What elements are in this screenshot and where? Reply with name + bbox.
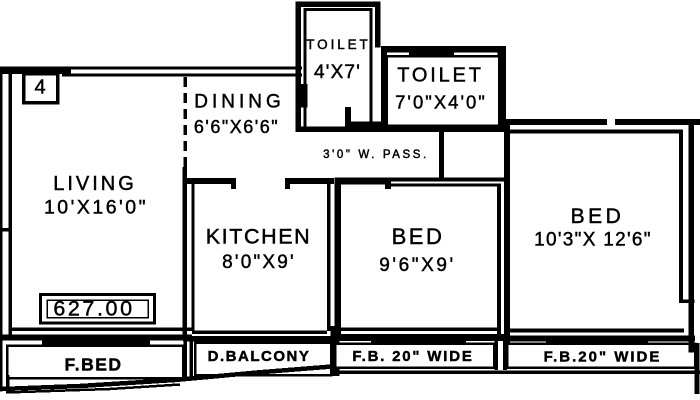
svg-text:BED: BED <box>571 205 625 228</box>
svg-text:F.B. 20" WIDE: F.B. 20" WIDE <box>352 348 473 365</box>
svg-text:627.00: 627.00 <box>53 297 134 321</box>
svg-text:8'0"X9': 8'0"X9' <box>222 252 296 273</box>
svg-text:9'6"X9': 9'6"X9' <box>379 255 456 276</box>
svg-text:LIVING: LIVING <box>53 173 137 195</box>
svg-text:KITCHEN: KITCHEN <box>206 225 312 249</box>
svg-text:F.B.20" WIDE: F.B.20" WIDE <box>544 349 662 366</box>
svg-text:7'0"X4'0": 7'0"X4'0" <box>395 92 487 113</box>
svg-text:6'6"X6'6": 6'6"X6'6" <box>194 117 279 137</box>
svg-text:3'0" W. PASS.: 3'0" W. PASS. <box>323 149 429 161</box>
svg-text:4'X7': 4'X7' <box>314 62 361 83</box>
svg-text:10'X16'0": 10'X16'0" <box>44 197 148 219</box>
svg-text:DINING: DINING <box>194 92 285 113</box>
svg-text:TOILET: TOILET <box>397 65 483 87</box>
svg-text:BED: BED <box>392 224 445 249</box>
svg-text:10'3"X 12'6": 10'3"X 12'6" <box>534 230 652 251</box>
svg-text:4: 4 <box>34 77 45 99</box>
svg-text:D.BALCONY: D.BALCONY <box>208 348 311 365</box>
svg-text:TOILET: TOILET <box>306 37 370 52</box>
svg-text:F.BED: F.BED <box>64 355 122 375</box>
